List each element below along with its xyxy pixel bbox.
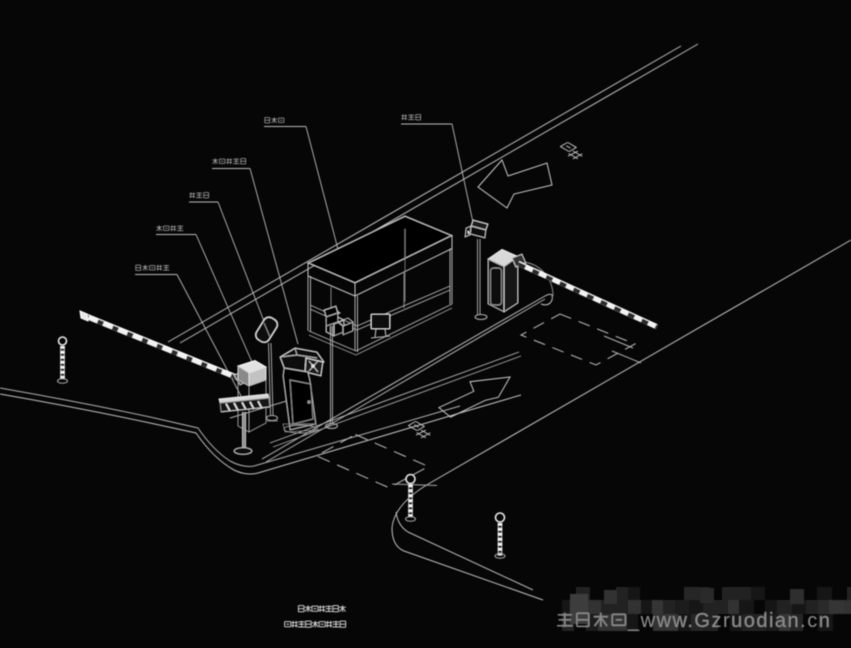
svg-text:_www.Gzruodian.cn: _www.Gzruodian.cn [627,610,831,632]
